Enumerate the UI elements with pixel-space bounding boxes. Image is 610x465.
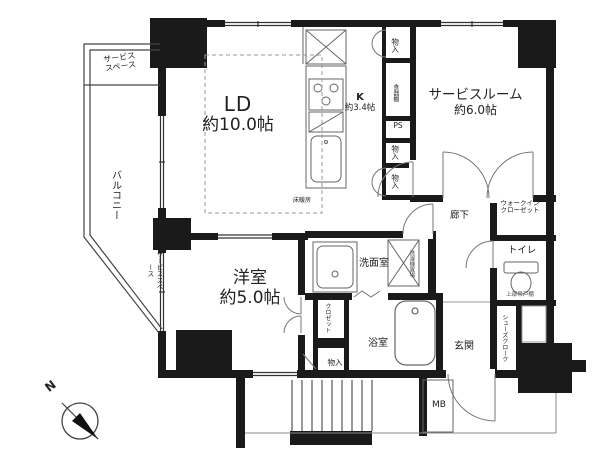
meter-box-label: MB [426, 400, 452, 410]
room-label-entrance: 玄関 [447, 341, 481, 353]
room-label-bedroom-closet: クロゼット [323, 299, 330, 337]
room-label-washroom: 洗面室 [350, 258, 398, 270]
upper-shelf-label: 上部吊戸棚 [492, 292, 548, 298]
service-room-size: 約6.0帖 [408, 104, 543, 118]
room-label-service-space-side: サービススペース [141, 250, 163, 290]
ld-size: 約10.0帖 [168, 116, 308, 136]
room-label-western-room: 洋室 約5.0帖 [190, 269, 310, 308]
stairs [292, 380, 372, 431]
room-label-kitchen: K 約3.4帖 [332, 92, 388, 113]
room-label-service-room: サービスルーム 約6.0帖 [408, 88, 543, 117]
storage-label-c: 物入 [390, 169, 399, 193]
western-room-name: 洋室 [190, 269, 310, 289]
pipe-space-label: PS [387, 122, 409, 131]
kitchen-name: K [332, 92, 388, 104]
room-label-toilet: トイレ [500, 246, 544, 257]
room-label-balcony: バルコニー [109, 145, 121, 245]
dish-shelf-label: 食器棚 [391, 72, 398, 114]
washer-space-label: 洗濯機置場 [408, 242, 414, 286]
storage-label-d: 物入 [321, 359, 349, 368]
room-label-bathroom: 浴室 [360, 338, 396, 350]
toilet-fixture [504, 262, 538, 294]
western-room-size: 約5.0帖 [190, 289, 310, 309]
service-room-name: サービスルーム [408, 88, 543, 104]
kitchen-size: 約3.4帖 [332, 104, 388, 114]
room-label-walk-in-closet: ウォークイン クローゼット [496, 200, 544, 215]
storage-label-b: 物入 [390, 142, 399, 162]
walls [150, 18, 586, 448]
utility-box-outline [522, 306, 546, 342]
bathtub [395, 301, 435, 365]
floor-heating-label: 床暖房 [283, 198, 321, 205]
floor-plan: LD 約10.0帖 K 約3.4帖 サービスルーム 約6.0帖 洋室 約5.0帖… [0, 0, 610, 465]
room-label-corridor: 廊下 [450, 211, 469, 222]
wic-line2: クローゼット [496, 207, 544, 214]
compass-icon [62, 403, 98, 439]
ld-name: LD [168, 93, 308, 116]
room-label-shoes-closet: シューズクローク [500, 308, 507, 368]
room-label-ld: LD 約10.0帖 [168, 93, 308, 136]
storage-label-a: 物入 [390, 33, 399, 57]
